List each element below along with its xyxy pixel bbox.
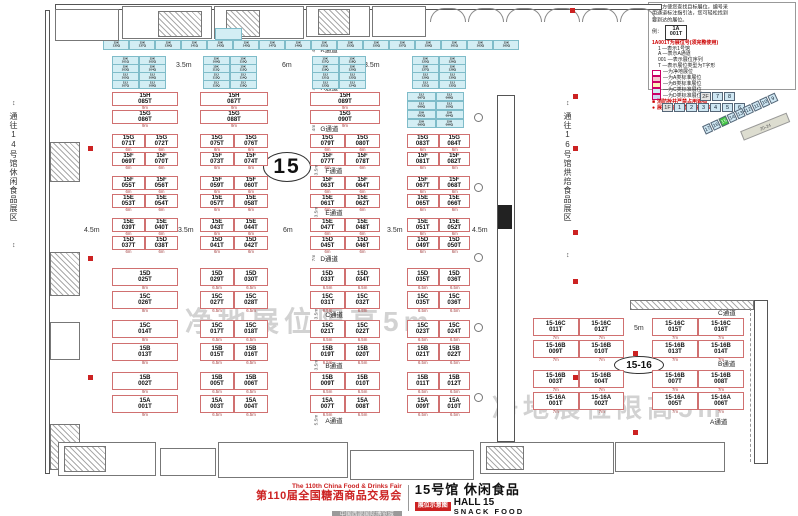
booth: 15D035T <box>407 268 439 286</box>
building-structure <box>55 9 119 41</box>
mini-booth: 15J131Q <box>412 80 439 89</box>
mini-booth: 15K151Q <box>311 40 337 50</box>
booth: 15B013T <box>112 343 178 361</box>
booth-dimension-label: 6.5m <box>239 309 263 313</box>
booth: 15D033T <box>310 268 345 286</box>
mini-booth: 15K161Q <box>441 40 467 50</box>
venue-name: 中国西部国际博览城 <box>332 511 402 516</box>
aisle-width-label: 6m <box>283 227 293 234</box>
booth-dimension-label: 6m <box>350 166 375 170</box>
booth: 15E048T <box>345 218 380 232</box>
aisle-label: B通道 <box>718 358 735 368</box>
booth: 15C021T <box>310 320 345 338</box>
aisle-label: 7mD通道 <box>310 253 338 263</box>
booth-dimension-label: 6m <box>117 166 141 170</box>
mini-booth: 15J116Q <box>230 80 257 89</box>
booth-dimension-label: 6m <box>239 208 263 212</box>
mini-booth: 15H094Q <box>436 110 465 119</box>
booth: 15C027T <box>200 291 234 309</box>
booth-dimension-label: 6.5m <box>205 361 229 365</box>
booth-dimension-label: 6m <box>150 250 174 254</box>
booth: 15D042T <box>234 236 268 250</box>
booth: 15B005T <box>200 372 234 390</box>
structural-column <box>474 253 483 262</box>
booth-dimension-label: 6.5m <box>411 390 434 394</box>
booth: 15F059T <box>200 176 234 190</box>
minimap-hall-4: 4 <box>710 103 721 112</box>
booth-dimension-label: 6.5m <box>411 361 434 365</box>
booth: 15B015T <box>200 343 234 361</box>
booth: 15G086T <box>112 110 178 124</box>
legend-intro: 为了方便您查找目标展位，编号采用通道标注指引法，您可轻松找到要到达的展位。 <box>652 5 792 24</box>
booth: 15A009T <box>407 395 439 413</box>
booth-dimension-label: 6.5m <box>239 390 263 394</box>
mini-booth: 15K155Q <box>363 40 389 50</box>
booth-dimension-label: 6.5m <box>411 338 434 342</box>
booth: 15F068T <box>439 176 471 190</box>
fire-hydrant-marker <box>573 375 578 380</box>
mini-booth: 15J124Q <box>339 80 366 89</box>
booth: 15-16C016T <box>698 318 744 336</box>
mini-booth: 15K153Q <box>337 40 363 50</box>
booth: 15A010T <box>439 395 471 413</box>
building-structure <box>50 252 80 296</box>
booth-dimension-label: 6m <box>411 208 434 212</box>
booth-dimension-label: 7m <box>658 410 691 414</box>
fire-hydrant-marker <box>633 430 638 435</box>
minimap-hall-1F: 1F <box>662 103 673 112</box>
down-arrow-icon: ↕ <box>566 252 570 259</box>
mini-booth: 15J123Q <box>312 80 339 89</box>
mini-booth: 15K135Q <box>103 40 129 50</box>
down-arrow-icon: ↕ <box>12 242 16 249</box>
booth-dimension-label: 6.5m <box>350 361 375 365</box>
door-arc <box>430 8 466 22</box>
booth: 15D038T <box>145 236 178 250</box>
booth: 15-16B014T <box>698 340 744 358</box>
booth: 15F078T <box>345 152 380 166</box>
mini-booth: 15J107Q <box>112 80 139 89</box>
building-structure <box>45 10 50 474</box>
booth: 15H085T <box>112 92 178 106</box>
aisle-label: 3.5mF通道 <box>310 165 342 175</box>
fire-hydrant-marker <box>633 351 638 356</box>
mini-booth: 15H093Q <box>407 110 436 119</box>
floorplan-badge: 展位示意图 <box>415 502 451 511</box>
booth: 15E044T <box>234 218 268 232</box>
up-arrow-icon: ↕ <box>12 100 16 107</box>
booth: 15-16C015T <box>652 318 698 336</box>
mini-booth: 15J132Q <box>439 80 466 89</box>
building-structure <box>754 300 768 464</box>
building-structure <box>158 11 202 37</box>
booth: 15H087T <box>200 92 268 106</box>
booth-dimension-label: 8m <box>121 338 169 342</box>
aisle-label: A通道 <box>710 416 727 426</box>
booth-dimension-label: 6m <box>443 208 466 212</box>
booth-dimension-label: 6.5m <box>443 413 466 417</box>
booth: 15D041T <box>200 236 234 250</box>
corridor-label-right: 通往16号馆烘焙食品展区 <box>562 112 573 222</box>
mini-booth: 15K157Q <box>389 40 415 50</box>
fire-hydrant-marker <box>573 146 578 151</box>
booth-dimension-label: 6m <box>150 208 174 212</box>
hall-subtitle-en: SNACK FOOD <box>454 508 524 516</box>
booth: 15G076T <box>234 134 268 148</box>
fire-hydrant-marker <box>573 94 578 99</box>
fire-hydrant-marker <box>88 256 93 261</box>
building-structure <box>615 442 725 472</box>
booth: 15E065T <box>407 194 439 208</box>
booth-dimension-label: 6.5m <box>205 390 229 394</box>
booth: 15F074T <box>234 152 268 166</box>
booth: 15D029T <box>200 268 234 286</box>
up-arrow-icon: ↕ <box>566 100 570 107</box>
booth-dimension-label: 6.5m <box>315 390 340 394</box>
booth-dimension-label: 6.5m <box>315 338 340 342</box>
mini-booth: 15K137Q <box>129 40 155 50</box>
aisle-label: 3.5mC通道 <box>310 309 343 319</box>
booth: 15E066T <box>439 194 471 208</box>
booth-dimension-label: 6m <box>443 166 466 170</box>
booth-dimension-label: 6.5m <box>239 286 263 290</box>
minimap-annex-halls: 20-24 <box>740 113 790 141</box>
booth: 15C032T <box>345 291 380 309</box>
booth-dimension-label: 6.5m <box>443 390 466 394</box>
aisle-width-label: 4.5m <box>472 227 488 234</box>
booth-dimension-label: 6m <box>117 208 141 212</box>
aisle-label: 5.5mA通道 <box>310 415 343 425</box>
mini-booth: 15K141Q <box>181 40 207 50</box>
booth: 15-16C011T <box>533 318 579 336</box>
booth-dimension-label: 6.5m <box>350 413 375 417</box>
title-divider <box>408 485 409 511</box>
booth: 15-16A005T <box>652 392 698 410</box>
booth: 15C024T <box>439 320 471 338</box>
building-structure <box>218 442 348 478</box>
booth: 15B019T <box>310 343 345 361</box>
booth: 15B020T <box>345 343 380 361</box>
mini-booth: 15J108Q <box>139 80 166 89</box>
booth: 15C028T <box>234 291 268 309</box>
fair-title-cn: 第110届全国糖酒商品交易会 <box>256 490 402 503</box>
building-structure <box>50 142 80 182</box>
booth-dimension-label: 6m <box>350 208 375 212</box>
booth: 15C023T <box>407 320 439 338</box>
aisle-width-label: 3.5m <box>387 227 403 234</box>
door-arc <box>620 8 656 22</box>
note-icon: ● <box>652 106 655 112</box>
booth-dimension-label: 6.5m <box>411 413 434 417</box>
booth: 15D050T <box>439 236 471 250</box>
building-structure <box>630 300 754 310</box>
booth: 15A008T <box>345 395 380 413</box>
door-arc <box>506 8 542 22</box>
door-arc <box>582 8 618 22</box>
booth: 15D030T <box>234 268 268 286</box>
fire-hydrant-marker <box>88 146 93 151</box>
booth-dimension-label: 6m <box>117 250 141 254</box>
booth: 15B021T <box>407 343 439 361</box>
booth-dimension-label: 6.5m <box>239 413 263 417</box>
booth: 15H089T <box>310 92 380 106</box>
booth: 15B016T <box>234 343 268 361</box>
booth-dimension-label: 6.5m <box>350 286 375 290</box>
mini-booth: 15K147Q <box>259 40 285 50</box>
booth-dimension-label: 6m <box>411 250 434 254</box>
booth: 15G075T <box>200 134 234 148</box>
booth: 15-16A002T <box>579 392 625 410</box>
booth: 15E051T <box>407 218 439 232</box>
booth: 15F082T <box>439 152 471 166</box>
booth-dimension-label: 6.5m <box>443 286 466 290</box>
booth-dimension-label: 6m <box>205 166 229 170</box>
mini-booth: 15H095Q <box>407 119 436 128</box>
booth-dimension-label: 6.5m <box>239 338 263 342</box>
booth: 15E053T <box>112 194 145 208</box>
aisle-width-label: 4.5m <box>84 227 100 234</box>
aisle-width-label: 6m <box>282 62 292 69</box>
booth-dimension-label: 6.5m <box>350 390 375 394</box>
booth-dimension-label: 6m <box>205 250 229 254</box>
booth: 15G072T <box>145 134 178 148</box>
booth: 15C017T <box>200 320 234 338</box>
info-booth <box>215 28 242 40</box>
fire-hydrant-marker <box>573 230 578 235</box>
booth: 15G079T <box>310 134 345 148</box>
booth-dimension-label: 6.5m <box>350 338 375 342</box>
booth-dimension-label: 6.5m <box>205 338 229 342</box>
booth: 15D034T <box>345 268 380 286</box>
booth: 15G080T <box>345 134 380 148</box>
structural-column <box>474 393 483 402</box>
booth-dimension-label: 6m <box>239 166 263 170</box>
building-structure <box>486 446 524 470</box>
booth-dimension-label: 7m <box>585 358 618 362</box>
building-structure <box>498 205 512 229</box>
minimap-hall-2F: 2F <box>700 92 711 101</box>
building-structure <box>497 95 515 442</box>
booth-dimension-label: 6m <box>205 208 229 212</box>
mini-booth: 15J097Q <box>407 92 436 101</box>
structural-column <box>474 113 483 122</box>
booth: 15C014T <box>112 320 178 338</box>
building-structure <box>318 9 350 35</box>
booth: 15F055T <box>112 176 145 190</box>
aisle-width-label: 5m <box>634 325 644 332</box>
door-arc <box>468 8 504 22</box>
boundary-dashed-line <box>750 308 751 462</box>
booth-dimension-label: 8m <box>121 309 169 313</box>
booth: 15D045T <box>310 236 345 250</box>
mini-booth: 15K145Q <box>233 40 259 50</box>
building-structure <box>160 448 216 476</box>
booth: 15B011T <box>407 372 439 390</box>
booth: 15-16B003T <box>533 370 579 388</box>
legend-items: 1 —表示1号馆A —表示A通道001 —表示展位序列T —表示展位类型为T字形 <box>652 47 792 70</box>
booth-dimension-label: 6.5m <box>443 361 466 365</box>
booth: 15F056T <box>145 176 178 190</box>
booth: 15E062T <box>345 194 380 208</box>
booth: 15A004T <box>234 395 268 413</box>
aisle-label: 3.5mE通道 <box>310 207 343 217</box>
booth: 15F067T <box>407 176 439 190</box>
booth: 15D036T <box>439 268 471 286</box>
booth-dimension-label: 7m <box>658 358 691 362</box>
booth: 15G083T <box>407 134 439 148</box>
mini-booth: 15H096Q <box>436 119 465 128</box>
mini-booth: 15K163Q <box>467 40 493 50</box>
booth: 15-16C012T <box>579 318 625 336</box>
mini-booth: 15K149Q <box>285 40 311 50</box>
booth: 15C022T <box>345 320 380 338</box>
booth-dimension-label: 6.5m <box>443 338 466 342</box>
booth: 15F081T <box>407 152 439 166</box>
booth-dimension-label: 9m <box>210 124 259 128</box>
fire-hydrant-marker <box>570 8 575 13</box>
booth-dimension-label: 6.5m <box>350 309 375 313</box>
mini-booth: 15K159Q <box>415 40 441 50</box>
aisle-label: 3.5mB通道 <box>310 360 343 370</box>
mini-booth: 15K139Q <box>155 40 181 50</box>
minimap-hall-7: 7 <box>712 92 723 101</box>
booth-dimension-label: 9m <box>121 413 169 417</box>
booth-dimension-label: 6m <box>150 166 174 170</box>
booth: 15D049T <box>407 236 439 250</box>
structural-column <box>474 183 483 192</box>
booth: 15-16B004T <box>579 370 625 388</box>
legend-text-line: 为了方便您查找目标展位，编号采 <box>652 5 781 11</box>
building-structure <box>64 446 106 472</box>
hall-title-cn: 15号馆 休闲食品 <box>415 483 524 497</box>
booth-dimension-label: 8m <box>121 361 169 365</box>
booth: 15A003T <box>200 395 234 413</box>
aisle-width-label: 3.5m <box>364 62 380 69</box>
booth: 15F064T <box>345 176 380 190</box>
booth: 15C031T <box>310 291 345 309</box>
fire-hydrant-marker <box>573 279 578 284</box>
booth: 15-16A001T <box>533 392 579 410</box>
booth-dimension-label: 6m <box>350 250 375 254</box>
booth-dimension-label: 6m <box>239 250 263 254</box>
booth: 15B006T <box>234 372 268 390</box>
booth: 15E057T <box>200 194 234 208</box>
booth-dimension-label: 6.5m <box>205 286 229 290</box>
booth-dimension-label: 6.5m <box>239 361 263 365</box>
booth: 15-16A006T <box>698 392 744 410</box>
mini-booth: 15K143Q <box>207 40 233 50</box>
booth: 15-16B009T <box>533 340 579 358</box>
booth: 15G084T <box>439 134 471 148</box>
mini-booth: 15K165Q <box>493 40 519 50</box>
booth: 15A007T <box>310 395 345 413</box>
booth: 15D025T <box>112 268 178 286</box>
booth: 15E058T <box>234 194 268 208</box>
floor-plan-canvas: ↕ 通往14号馆休闲食品展区 ↕ ↕ 通往16号馆烘焙食品展区 ↕ 净地展位限高… <box>0 0 798 516</box>
building-structure <box>50 322 80 360</box>
booth: 15F073T <box>200 152 234 166</box>
booth-dimension-label: 6.5m <box>205 413 229 417</box>
booth: 15-16B008T <box>698 370 744 388</box>
booth: 15F070T <box>145 152 178 166</box>
booth-dimension-label: 7m <box>704 410 737 414</box>
minimap-hall-5: 5 <box>722 103 733 112</box>
building-structure <box>372 6 426 37</box>
booth: 15B009T <box>310 372 345 390</box>
booth: 15C036T <box>439 291 471 309</box>
booth: 15C035T <box>407 291 439 309</box>
booth: 15B012T <box>439 372 471 390</box>
mini-booth: 15J100Q <box>436 101 465 110</box>
booth: 15E052T <box>439 218 471 232</box>
booth-dimension-label: 6.5m <box>315 286 340 290</box>
booth: 15E043T <box>200 218 234 232</box>
booth-dimension-label: 6.5m <box>411 286 434 290</box>
minimap-hall-2: 2 <box>686 103 697 112</box>
minimap-hall-1: 1 <box>674 103 685 112</box>
legend-example-prefix: 例： <box>652 30 662 36</box>
booth: 15B010T <box>345 372 380 390</box>
booth-dimension-label: 6m <box>411 166 434 170</box>
booth-dimension-label: 6.5m <box>411 309 434 313</box>
booth: 15B002T <box>112 372 178 390</box>
minimap-hall-3: 3 <box>698 103 709 112</box>
aisle-label: 4mG通道 <box>310 123 338 133</box>
booth: 15-16B013T <box>652 340 698 358</box>
minimap-hall-8: 8 <box>724 92 735 101</box>
booth: 15G071T <box>112 134 145 148</box>
aisle-width-label: 3.5m <box>178 227 194 234</box>
mini-booth: 15J099Q <box>407 101 436 110</box>
booth-dimension-label: 7m <box>539 410 572 414</box>
booth-dimension-label: 6.5m <box>443 309 466 313</box>
booth: 15E039T <box>112 218 145 232</box>
booth: 15F060T <box>234 176 268 190</box>
booth: 15G088T <box>200 110 268 124</box>
fire-hydrant-marker <box>88 375 93 380</box>
booth: 15G090T <box>310 110 380 124</box>
booth: 15C026T <box>112 291 178 309</box>
legend-example-booth: 1A 001T <box>665 25 687 40</box>
booth: 15E054T <box>145 194 178 208</box>
structural-column <box>474 323 483 332</box>
booth-dimension-label: 6m <box>443 250 466 254</box>
booth: 15E040T <box>145 218 178 232</box>
booth: 15D046T <box>345 236 380 250</box>
booth: 15-16B010T <box>579 340 625 358</box>
booth: 15-16B007T <box>652 370 698 388</box>
hall-15-label: 15 <box>263 152 311 182</box>
mini-booth: 15J115Q <box>203 80 230 89</box>
legend-text-line: 要到达的展位。 <box>652 18 781 24</box>
booth: 15F069T <box>112 152 145 166</box>
title-block: The 110th China Food & Drinks Fair 第110届… <box>256 483 524 516</box>
booth-dimension-label: 9m <box>121 390 169 394</box>
booth-dimension-label: 8m <box>121 286 169 290</box>
booth: 15F063T <box>310 176 345 190</box>
booth-dimension-label: 7m <box>585 410 618 414</box>
booth: 15A001T <box>112 395 178 413</box>
legend-box: 为了方便您查找目标展位，编号采用通道标注指引法，您可轻松找到要到达的展位。 例：… <box>648 2 796 90</box>
booth: 15E047T <box>310 218 345 232</box>
mini-booth: 15J098Q <box>436 92 465 101</box>
corridor-label-left: 通往14号馆休闲食品展区 <box>8 112 19 222</box>
aisle-width-label: 3.5m <box>176 62 192 69</box>
booth-dimension-label: 7m <box>539 358 572 362</box>
booth: 15B022T <box>439 343 471 361</box>
legend-text-line: 用通道标注指引法，您可轻松找到 <box>652 11 781 17</box>
building-structure <box>350 450 474 480</box>
